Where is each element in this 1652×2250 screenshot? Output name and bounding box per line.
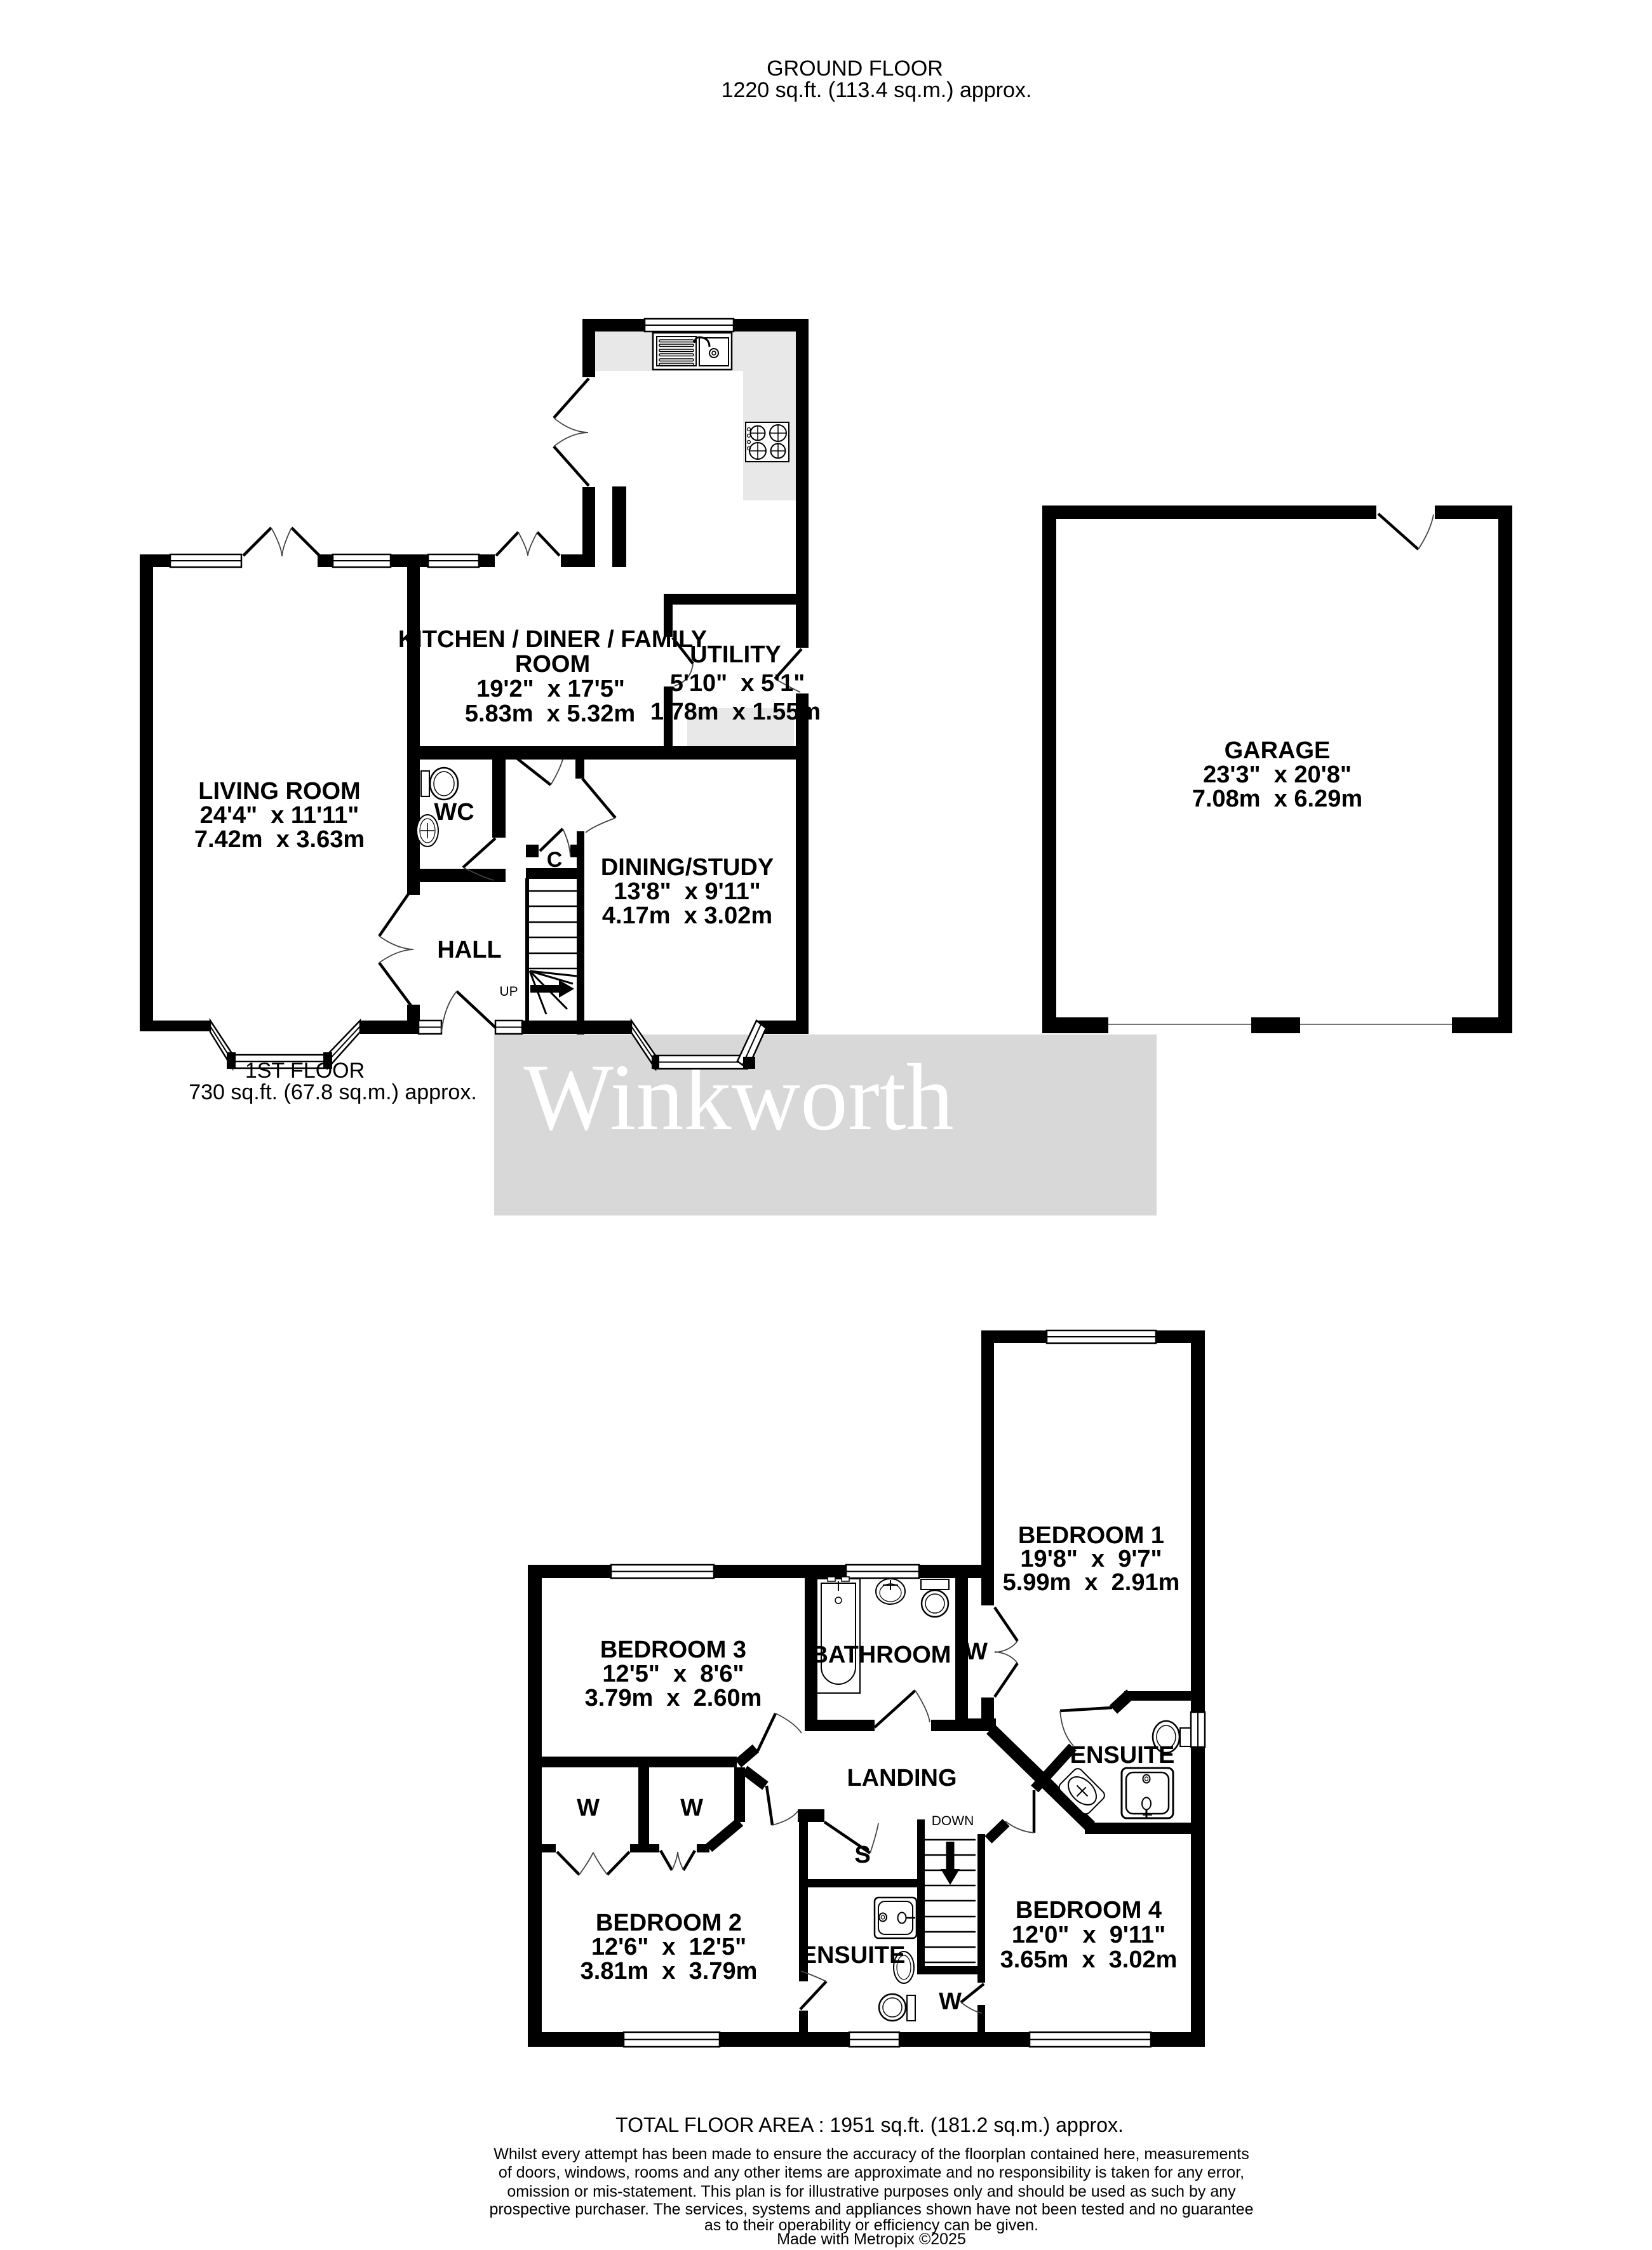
svg-text:7.42m x 3.63m: 7.42m x 3.63m <box>194 826 365 853</box>
svg-text:BEDROOM 3: BEDROOM 3 <box>600 1637 746 1663</box>
svg-text:ROOM: ROOM <box>515 651 590 678</box>
svg-text:3.81m x 3.79m: 3.81m x 3.79m <box>581 1958 758 1985</box>
svg-text:W: W <box>680 1795 703 1821</box>
svg-text:KITCHEN / DINER / FAMILY: KITCHEN / DINER / FAMILY <box>398 626 707 653</box>
svg-text:DOWN: DOWN <box>932 1814 974 1828</box>
svg-text:GARAGE: GARAGE <box>1225 737 1331 764</box>
svg-text:ENSUITE: ENSUITE <box>1070 1742 1175 1769</box>
svg-text:1220 sq.ft. (113.4 sq.m.) appr: 1220 sq.ft. (113.4 sq.m.) approx. <box>722 78 1032 102</box>
svg-text:W: W <box>939 1988 962 2015</box>
svg-text:4.17m x 3.02m: 4.17m x 3.02m <box>602 902 772 929</box>
svg-text:19'8" x 9'7": 19'8" x 9'7" <box>1020 1546 1162 1572</box>
svg-text:GROUND FLOOR: GROUND FLOOR <box>767 57 943 81</box>
svg-text:LANDING: LANDING <box>847 1765 957 1791</box>
svg-text:24'4" x 11'11": 24'4" x 11'11" <box>200 802 359 829</box>
svg-text:13'8" x 9'11": 13'8" x 9'11" <box>614 878 761 905</box>
svg-text:LIVING ROOM: LIVING ROOM <box>198 778 360 805</box>
svg-text:omission or mis-statement. Thi: omission or mis-statement. This plan is … <box>507 2183 1236 2200</box>
svg-text:UP: UP <box>499 984 518 999</box>
svg-text:5.83m x 5.32m: 5.83m x 5.32m <box>465 700 635 727</box>
svg-text:1.78m x 1.55m: 1.78m x 1.55m <box>650 699 821 725</box>
svg-text:Made with Metropix ©2025: Made with Metropix ©2025 <box>777 2230 966 2248</box>
svg-text:prospective purchaser. The ser: prospective purchaser. The services, sys… <box>489 2200 1253 2218</box>
svg-text:TOTAL FLOOR AREA : 1951 sq.ft.: TOTAL FLOOR AREA : 1951 sq.ft. (181.2 sq… <box>615 2113 1124 2136</box>
svg-text:3.65m x 3.02m: 3.65m x 3.02m <box>1000 1946 1178 1973</box>
svg-text:BEDROOM 4: BEDROOM 4 <box>1016 1897 1162 1924</box>
svg-text:23'3" x 20'8": 23'3" x 20'8" <box>1203 761 1352 788</box>
svg-text:C: C <box>547 848 563 872</box>
svg-text:5'10" x 5'1": 5'10" x 5'1" <box>670 670 805 697</box>
svg-text:19'2" x 17'5": 19'2" x 17'5" <box>476 676 625 702</box>
svg-text:5.99m x 2.91m: 5.99m x 2.91m <box>1003 1569 1180 1596</box>
svg-text:DINING/STUDY: DINING/STUDY <box>601 854 774 881</box>
svg-text:12'0" x 9'11": 12'0" x 9'11" <box>1012 1922 1165 1948</box>
svg-text:W: W <box>965 1638 988 1665</box>
svg-text:ENSUITE: ENSUITE <box>801 1942 906 1969</box>
svg-text:W: W <box>577 1795 600 1821</box>
svg-text:3.79m x 2.60m: 3.79m x 2.60m <box>585 1685 762 1711</box>
svg-text:12'6" x 12'5": 12'6" x 12'5" <box>591 1934 746 1960</box>
svg-text:12'5" x 8'6": 12'5" x 8'6" <box>602 1661 744 1687</box>
svg-text:1ST FLOOR: 1ST FLOOR <box>245 1059 365 1083</box>
svg-text:S: S <box>854 1842 870 1868</box>
svg-text:BEDROOM 1: BEDROOM 1 <box>1018 1522 1164 1549</box>
svg-text:WC: WC <box>434 799 474 826</box>
svg-text:BATHROOM: BATHROOM <box>811 1642 951 1668</box>
svg-text:Whilst every attempt has been: Whilst every attempt has been made to en… <box>494 2145 1249 2163</box>
svg-text:HALL: HALL <box>437 937 501 963</box>
svg-text:7.08m x 6.29m: 7.08m x 6.29m <box>1192 786 1362 812</box>
svg-text:730 sq.ft. (67.8 sq.m.) approx: 730 sq.ft. (67.8 sq.m.) approx. <box>189 1080 477 1104</box>
svg-text:UTILITY: UTILITY <box>690 641 781 668</box>
svg-text:BEDROOM 2: BEDROOM 2 <box>596 1910 742 1936</box>
svg-text:of doors, windows, rooms and a: of doors, windows, rooms and any other i… <box>499 2164 1244 2181</box>
